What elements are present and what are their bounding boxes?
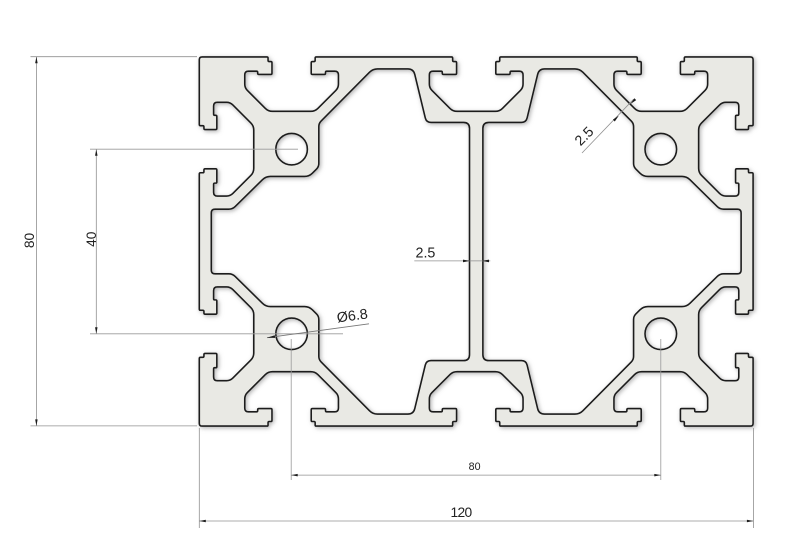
svg-text:2.5: 2.5 [416, 246, 436, 262]
svg-text:120: 120 [451, 505, 473, 520]
svg-text:2.5: 2.5 [572, 124, 597, 149]
svg-text:40: 40 [84, 231, 99, 247]
svg-text:Ø6.8: Ø6.8 [336, 306, 369, 326]
svg-text:80: 80 [469, 461, 481, 473]
svg-text:80: 80 [22, 233, 37, 249]
